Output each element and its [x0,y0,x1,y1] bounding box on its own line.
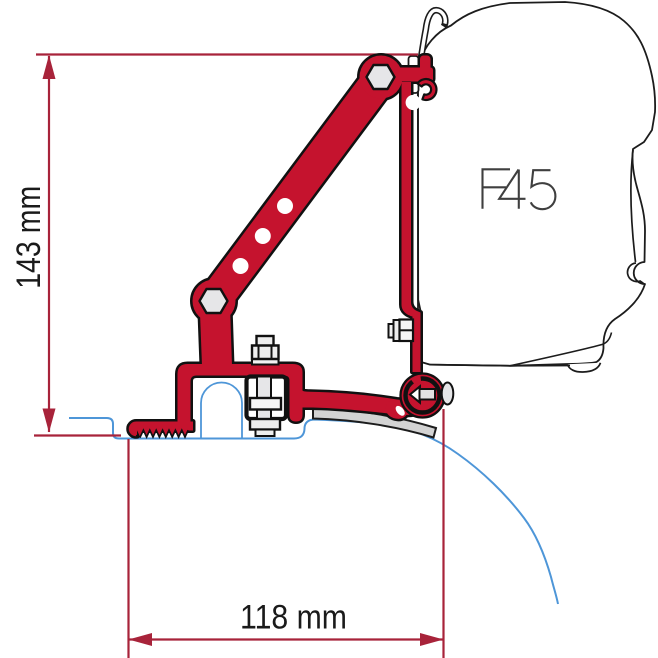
svg-text:143 mm: 143 mm [10,186,48,289]
svg-text:118 mm: 118 mm [240,599,347,637]
